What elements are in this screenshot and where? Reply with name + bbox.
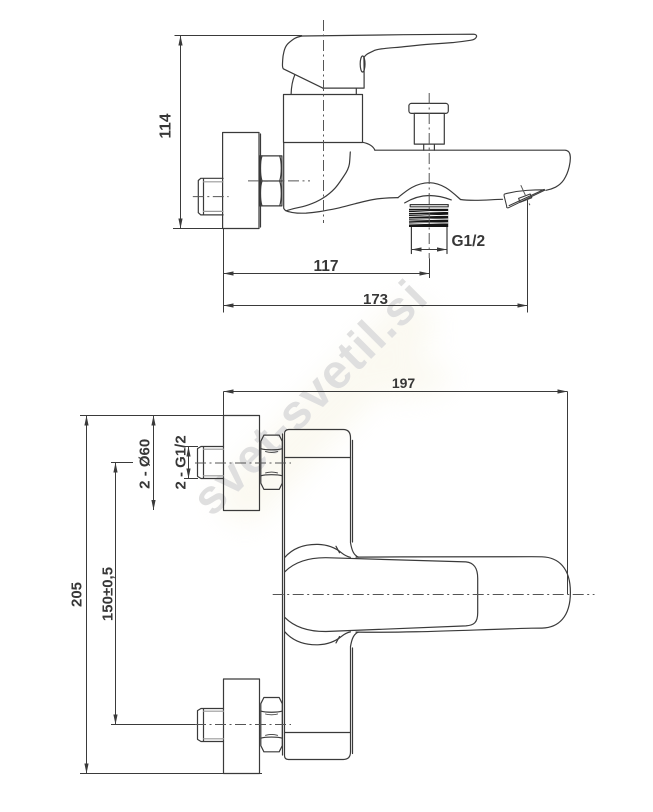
svg-text:197: 197 bbox=[392, 375, 416, 391]
svg-text:205: 205 bbox=[69, 582, 86, 607]
svg-text:114: 114 bbox=[158, 113, 175, 138]
svg-text:173: 173 bbox=[363, 291, 388, 308]
svg-text:2 - Ø60: 2 - Ø60 bbox=[136, 439, 153, 489]
svg-text:2 - G1/2: 2 - G1/2 bbox=[173, 435, 190, 489]
svg-text:150±0,5: 150±0,5 bbox=[100, 567, 117, 621]
svg-text:117: 117 bbox=[313, 258, 338, 275]
svg-text:G1/2: G1/2 bbox=[452, 233, 486, 250]
